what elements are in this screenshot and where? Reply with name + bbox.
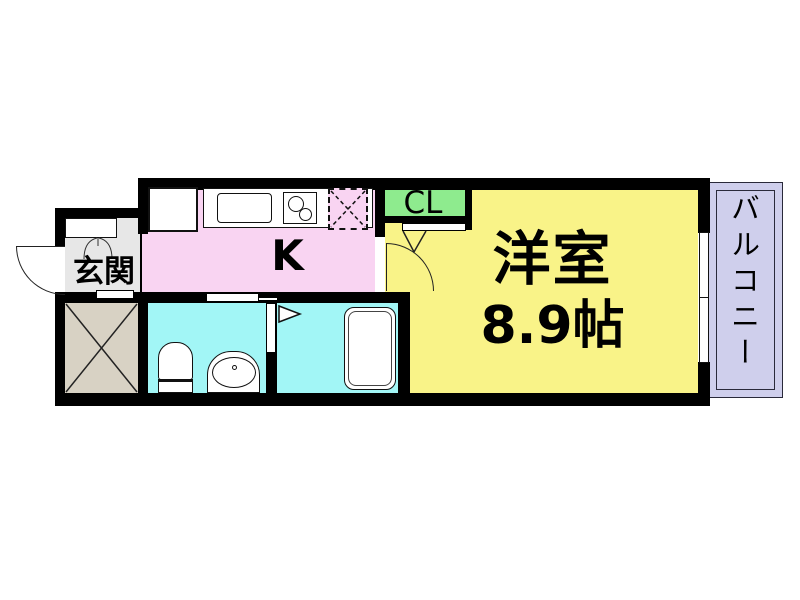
entrance-label: 玄関 [65, 250, 143, 294]
bathtub-inner-line [348, 311, 392, 386]
wall [55, 208, 65, 246]
toilet-tank [158, 379, 193, 393]
wall [398, 292, 410, 393]
washroom-sliding-door [206, 293, 259, 302]
room-size-label: 8.9帖 [430, 298, 675, 354]
balcony-label: バルコニー [726, 193, 760, 393]
refrigerator-space [328, 188, 368, 230]
wall [55, 292, 65, 406]
balcony-window-divider [699, 297, 709, 298]
closet-label: CL [392, 190, 454, 217]
kitchen-label: K [250, 232, 325, 280]
kitchen-sink [217, 193, 272, 223]
vanity-basin [212, 357, 256, 388]
vanity-faucet-dot [232, 365, 237, 370]
washer-space [148, 187, 198, 232]
wall [375, 190, 385, 237]
bath-folding-door-leaf [266, 303, 276, 353]
wall [138, 178, 148, 234]
room-label: 洋室 [430, 226, 675, 292]
floorplan-canvas: 玄関 K CL 洋室 8.9帖 バルコニー [0, 0, 800, 600]
toilet-icon [158, 342, 193, 380]
room-door-opening [375, 237, 385, 292]
wall [138, 303, 148, 393]
wall [55, 208, 148, 218]
wall [55, 393, 710, 406]
entrance-door-arc [16, 246, 65, 295]
stove-burner-icon [299, 208, 312, 221]
shaft-box [65, 303, 138, 393]
washroom-door-track [258, 297, 278, 301]
shoe-cabinet [65, 218, 117, 238]
wall [465, 190, 472, 230]
wall [698, 178, 710, 233]
